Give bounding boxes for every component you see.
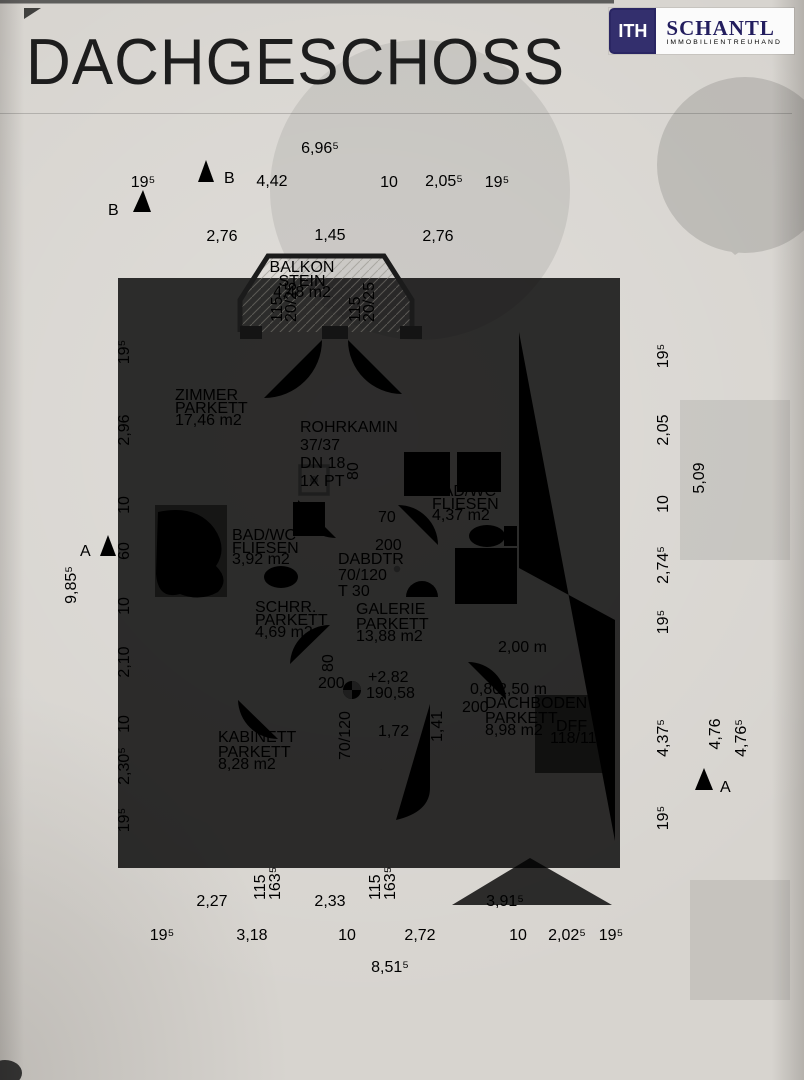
section-a-label-2: A	[720, 779, 731, 796]
dim-left-8: 19⁵	[116, 808, 133, 832]
dim-right-outer-0: 5,09	[691, 462, 708, 493]
mid-dim-c: 200	[375, 537, 402, 554]
dim-left-3: 60	[116, 542, 133, 560]
mid-dim-a: 80	[345, 462, 362, 480]
section-b-label-2: B	[108, 202, 119, 219]
section-marker-a-right: A	[640, 768, 731, 796]
washbasin-left-icon	[264, 566, 298, 588]
dim-top-4: 19⁵	[485, 174, 509, 191]
radiator-icon	[293, 502, 325, 536]
dim-right-0: 19⁵	[655, 344, 672, 368]
dachboden-dim-c: 2,50 m	[498, 681, 547, 698]
stair-run-dim: 1,72	[378, 723, 409, 740]
page-title: DACHGESCHOSS	[26, 26, 565, 100]
title-underline	[0, 113, 792, 114]
dff-mid-label-2: 78/118	[465, 571, 513, 588]
section-marker-a-left: A	[80, 535, 116, 560]
level-absolute: 190,58	[366, 685, 415, 702]
section-marker-b: B B	[108, 160, 238, 219]
sill-label-3: 163⁵	[382, 867, 399, 900]
dim-top2-2: 2,76	[422, 228, 453, 245]
agency-logo: ITH SCHANTL IMMOBILIENTREUHAND	[609, 8, 794, 54]
pier-label-1: 20/25	[283, 282, 300, 322]
pier-label-3: 20/25	[361, 282, 378, 322]
dim-right-5: 4,37⁵	[655, 719, 672, 757]
section-a-label-1: A	[80, 543, 91, 560]
dim-bottom2-5: 2,02⁵	[548, 927, 586, 944]
dim-top-total: 6,96⁵	[301, 140, 339, 157]
dim-bottom1-0: 2,27	[196, 893, 227, 910]
dim-right-4: 19⁵	[655, 610, 672, 634]
dachboden-dim-d: 200	[462, 699, 489, 716]
dim-top-3: 2,05⁵	[425, 173, 463, 190]
dim-right-outer-2: 4,76⁵	[733, 719, 750, 757]
dim-bottom1-1: 2,33	[314, 893, 345, 910]
dff-dachboden-label-2: 118/118	[550, 730, 606, 747]
dim-top-1: 4,42	[256, 173, 287, 190]
dim-left-4: 10	[116, 597, 133, 615]
room-bad-left-area: 3,92 m2	[232, 551, 290, 568]
dachboden-dim-a: 2,00 m	[498, 639, 547, 656]
dim-right-1: 2,05	[655, 414, 672, 445]
dim-top-2: 10	[380, 174, 398, 191]
dim-top-0: 19⁵	[131, 174, 155, 191]
dim-right-outer-1: 4,76	[707, 718, 724, 749]
dabdtr-label-3: T 30	[338, 583, 370, 600]
dim-bottom2-3: 2,72	[404, 927, 435, 944]
chimney-label-1: ROHRKAMIN	[300, 419, 398, 436]
dim-right-6: 19⁵	[655, 806, 672, 830]
dachboden-dim-b: 0,80	[470, 681, 501, 698]
mid-dim-e: 200	[318, 675, 345, 692]
room-dachboden-area: 8,98 m2	[485, 722, 543, 739]
logo-name: SCHANTL	[666, 18, 782, 39]
dim-bottom2-4: 10	[509, 927, 527, 944]
dim-bottom1-2: 3,91⁵	[486, 893, 524, 910]
scanned-floorplan-page: DACHGESCHOSS ITH SCHANTL IMMOBILIENTREUH…	[0, 0, 804, 1080]
dff-left-label-2: 78/118	[163, 541, 211, 558]
dim-bottom2-2: 10	[338, 927, 356, 944]
dim-left-1: 2,96	[116, 414, 133, 445]
dim-right-2: 10	[655, 495, 672, 513]
dim-left-6: 10	[116, 715, 133, 733]
dim-right-3: 2,74⁵	[655, 546, 672, 584]
floorplan-drawing: BALKON STEIN 4,48 m2 ZIMMER PARKETT 17,4…	[0, 0, 804, 1080]
room-bad-right-area: 4,37 m2	[432, 507, 490, 524]
dim-bottom2-0: 19⁵	[150, 927, 174, 944]
logo-tagline: IMMOBILIENTREUHAND	[666, 39, 782, 46]
room-schrank-area: 4,69 m2	[255, 624, 313, 641]
dim-left-5: 2,10	[116, 646, 133, 677]
dim-top2-0: 2,76	[206, 228, 237, 245]
stair-size-dim: 70/120	[337, 711, 354, 760]
dabdtr-label-2: 70/120	[338, 567, 387, 584]
dim-left-outer: 9,85⁵	[63, 566, 80, 604]
mid-dim-b: 70	[378, 509, 396, 526]
dim-left-2: 10	[116, 496, 133, 514]
level-marker-icon	[343, 681, 361, 699]
room-zimmer-area: 17,46 m2	[175, 412, 242, 429]
dim-left-0: 19⁵	[116, 340, 133, 364]
stair-rise-dim: 1,41	[429, 711, 446, 742]
dim-bottom2-6: 19⁵	[599, 927, 623, 944]
sill-label-1: 163⁵	[267, 867, 284, 900]
room-kabinett-area: 8,28 m2	[218, 756, 276, 773]
dim-bottom2-1: 3,18	[236, 927, 267, 944]
chimney-label-3: DN 18	[300, 455, 345, 472]
toilet-icon	[469, 525, 517, 547]
room-galerie-area: 13,88 m2	[356, 628, 423, 645]
dim-left-7: 2,30⁵	[116, 747, 133, 785]
chimney-label-2: 37/37	[300, 437, 340, 454]
section-b-label-1: B	[224, 170, 235, 187]
dim-bottom-total: 8,51⁵	[371, 959, 409, 976]
mid-dim-d: 80	[320, 654, 337, 672]
level-value: +2,82	[368, 669, 409, 686]
dim-top2-1: 1,45	[314, 227, 345, 244]
logo-wordmark: SCHANTL IMMOBILIENTREUHAND	[656, 8, 794, 54]
chimney-label-4: 1X PT	[300, 473, 345, 490]
ith-logo-icon: ITH	[609, 8, 656, 54]
